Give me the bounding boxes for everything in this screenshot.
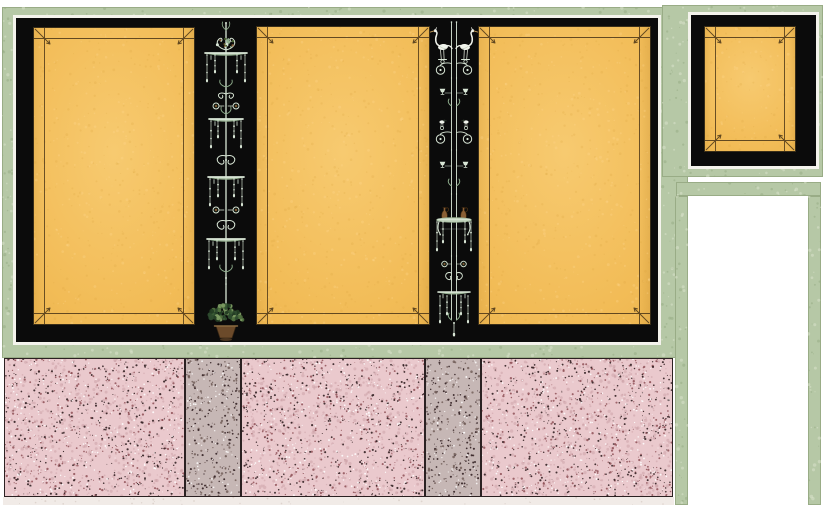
corner-diagonal-tick [634,28,649,43]
dado-pink-2 [241,358,425,497]
speckle-texture [5,359,184,496]
door-frame-right-bar [808,196,821,505]
corner-diagonal-tick [258,308,273,323]
speckle-texture [808,196,821,505]
corner-diagonal-tick [258,28,273,43]
panel-rule-border [705,27,795,151]
speckle-texture [426,359,480,496]
corner-diagonal-tick [178,308,193,323]
corner-diagonal-tick [413,28,428,43]
upper-panel-left [33,27,195,325]
egret-right-icon [456,28,478,64]
corner-diagonal-tick [480,308,495,323]
cup-icon [463,89,468,94]
corner-diagonal-tick [35,29,50,44]
speckle-texture [242,359,424,496]
side-pier-panel [704,26,796,152]
speckle-texture [675,196,688,505]
jug-icon [461,208,468,219]
foliage-basket [208,303,245,341]
speckle-texture [676,182,821,196]
candelabrum-2 [430,18,478,342]
corner-diagonal-tick [480,28,495,43]
corner-diagonal-tick [35,308,50,323]
corner-diagonal-tick [706,135,721,150]
cup-icon [440,89,445,94]
upper-panel-right [478,26,651,325]
panel-rule-border [479,27,650,324]
egret-left-icon [430,28,452,64]
candelabrum-1 [196,20,256,342]
door-frame-top-bar [676,182,821,196]
corner-diagonal-tick [634,308,649,323]
dado-gray-2 [425,358,481,497]
jug-icon [442,208,449,219]
small-bird-icon [439,120,447,130]
speckle-texture [3,497,674,505]
cup-icon [440,162,445,167]
cup-icon [463,162,468,167]
small-bird-icon [461,120,469,130]
speckle-texture [186,359,240,496]
dado-pink-3 [481,358,673,497]
panel-rule-border [257,27,429,324]
panel-rule-border [34,28,194,324]
dado-base-strip [3,497,674,505]
dado-pink-1 [4,358,185,497]
corner-diagonal-tick [706,28,721,43]
dado-gray-1 [185,358,241,497]
corner-diagonal-tick [178,29,193,44]
upper-panel-center [256,26,430,325]
corner-diagonal-tick [413,308,428,323]
corner-diagonal-tick [779,135,794,150]
artwork-canvas [0,0,825,505]
corner-diagonal-tick [779,28,794,43]
speckle-texture [482,359,672,496]
door-frame-left-bar [675,196,688,505]
